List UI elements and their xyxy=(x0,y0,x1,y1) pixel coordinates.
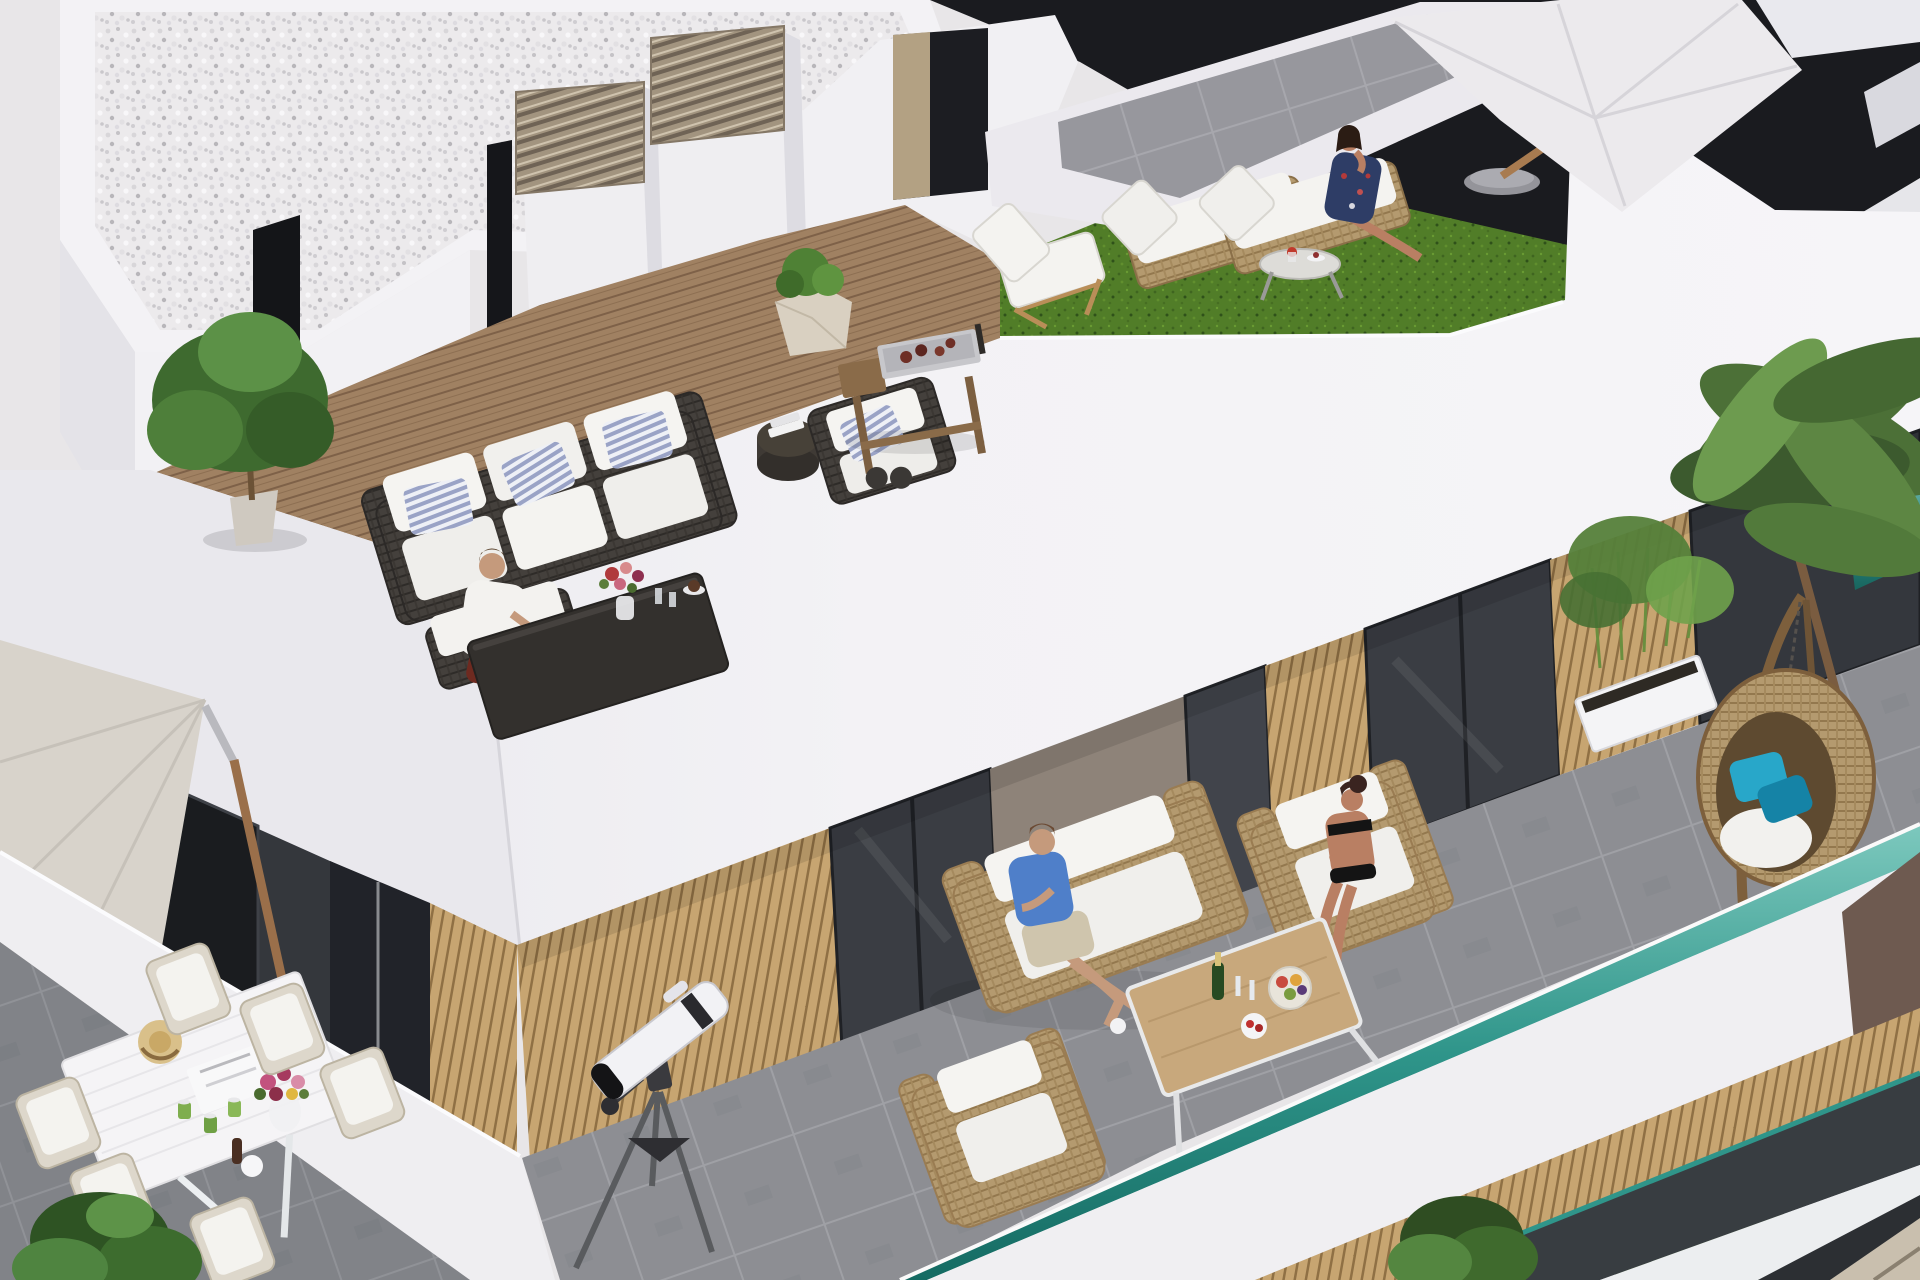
wine-bottle xyxy=(232,1138,242,1164)
white-cup xyxy=(241,1155,263,1177)
head xyxy=(479,553,505,579)
blue-tshirt xyxy=(1006,849,1075,928)
terrace-door-panel xyxy=(893,32,930,200)
counterweight xyxy=(601,1097,619,1115)
louver-vent xyxy=(516,82,644,194)
architectural-render xyxy=(0,0,1920,1280)
head xyxy=(1029,829,1055,855)
louver-chimney-2 xyxy=(651,26,806,268)
louver-vent xyxy=(651,26,784,144)
render-canvas xyxy=(0,0,1920,1280)
